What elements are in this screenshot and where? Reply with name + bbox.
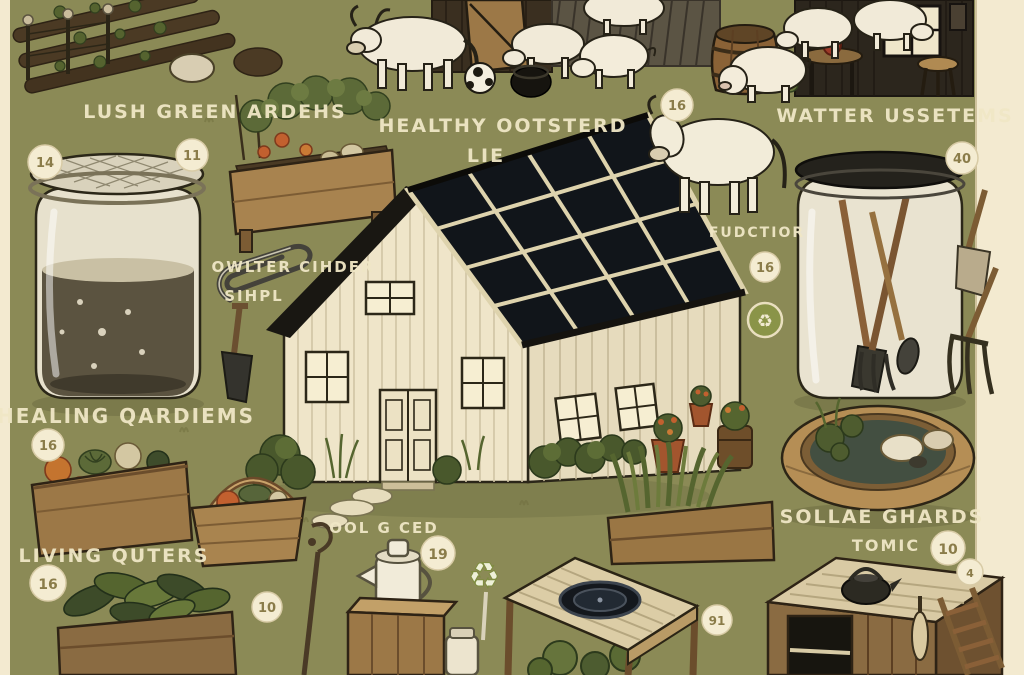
badge-6: 16 [30, 565, 66, 601]
label-fudctior: FUDCTIOR [709, 225, 805, 241]
rock [170, 54, 214, 82]
svg-text:16: 16 [668, 99, 686, 114]
milk-can [446, 628, 478, 675]
badge-4: 16 [750, 252, 780, 282]
svg-text:10: 10 [938, 542, 958, 558]
svg-text:16: 16 [38, 577, 57, 593]
label-healthy-line1: HEALTHY OOTSTERD [378, 115, 627, 137]
label-living-quarters: LIVING QUTERS [19, 545, 210, 567]
pond-stone-small [923, 430, 953, 450]
front-window-right [462, 358, 504, 408]
svg-text:4: 4 [966, 567, 974, 580]
label-lush-green-gardens: LUSH GREEN ARDEHS [83, 101, 346, 123]
svg-text:14: 14 [36, 156, 54, 171]
svg-text:16: 16 [39, 439, 57, 454]
side-window-2 [616, 384, 659, 430]
label-owlter-cihder: OWLTER CIHDER [211, 258, 374, 276]
badge-7: 19 [421, 536, 455, 570]
badge-11: 91 [702, 605, 732, 635]
tool-jar [794, 152, 966, 414]
recycle-badge-icon: ♻ [757, 311, 773, 332]
svg-text:10: 10 [258, 601, 276, 616]
svg-text:11: 11 [183, 149, 201, 164]
label-ool-g-ced: OOL G CED [329, 519, 439, 537]
label-sihpl: SIHPL [224, 287, 284, 305]
svg-text:91: 91 [709, 614, 726, 628]
badge-0: 14 [28, 145, 62, 179]
picture-frame [950, 4, 966, 30]
gable-window [366, 282, 414, 314]
shed-door-opening [788, 616, 852, 675]
badge-5: 16 [32, 429, 64, 461]
recycle-icon: ♻ [468, 556, 500, 597]
badge-2: 16 [661, 89, 693, 121]
side-window-1 [555, 394, 600, 443]
soil-mound [234, 48, 282, 76]
svg-text:19: 19 [428, 547, 447, 563]
label-healing-gardens: HEALING QARDIEMS [0, 404, 255, 428]
front-window-left [306, 352, 348, 402]
badge-9: 10 [931, 531, 965, 565]
black-pot [511, 66, 551, 97]
recycle-badge: ♻ [748, 303, 782, 337]
svg-text:16: 16 [756, 261, 774, 276]
illustration-canvas: ♻ [0, 0, 1024, 675]
label-water-systems: WATTER USSETEMS [776, 105, 1013, 127]
badge-8: 10 [252, 592, 282, 622]
label-sollab-line1: SOLLAE GHARDS [780, 506, 985, 528]
badge-10: 4 [957, 559, 983, 585]
front-door [380, 390, 436, 482]
label-healthy-line2: LIE [467, 145, 505, 167]
stool [918, 57, 958, 96]
soccer-ball [465, 63, 495, 93]
badge-3: 40 [946, 142, 978, 174]
fermentation-jar [30, 154, 204, 416]
badge-1: 11 [176, 139, 208, 171]
svg-text:40: 40 [953, 152, 971, 167]
label-sollab-line2: TOMIC [852, 536, 920, 555]
